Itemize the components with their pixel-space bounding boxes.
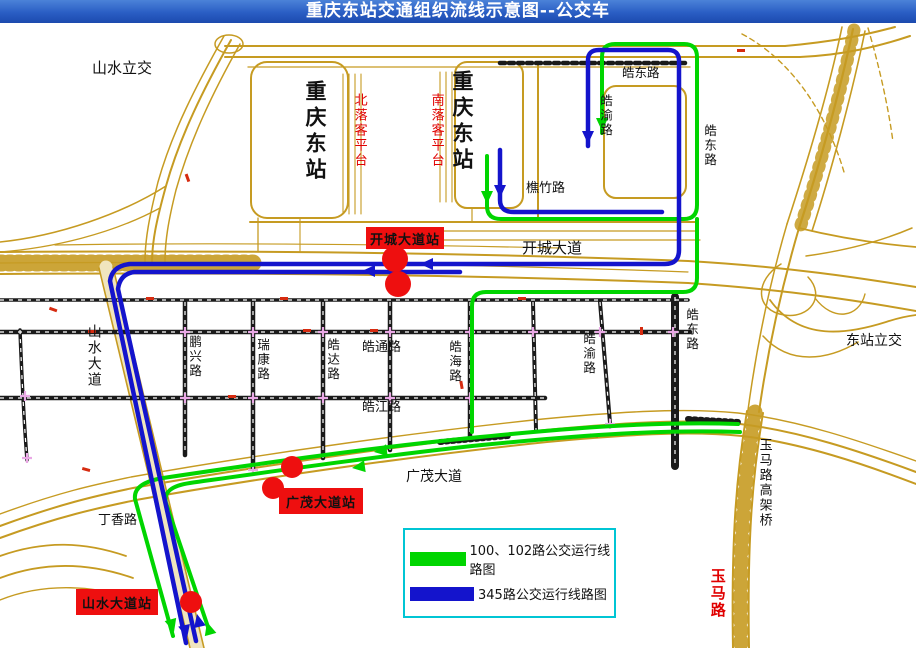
- shanshui-stop-dot: [180, 591, 202, 613]
- label-ruikang-road: 瑞康路: [256, 338, 269, 382]
- station-box-kaicheng: 开城大道站: [366, 227, 444, 249]
- legend-green-swatch: [410, 552, 466, 566]
- legend: 100、102路公交运行线路图 345路公交运行线路图: [403, 528, 616, 618]
- label-haoda-road: 皓达路: [326, 338, 339, 382]
- kaicheng-stop-dot-1: [382, 246, 408, 272]
- label-haohai-road: 皓海路: [448, 340, 461, 384]
- label-kaicheng-avenue: 开城大道: [522, 241, 582, 257]
- label-guangmao-avenue: 广茂大道: [406, 470, 462, 485]
- blue-station-exit: [500, 150, 662, 212]
- legend-blue-swatch: [410, 587, 474, 601]
- guangmao-stop-dot-1: [281, 456, 303, 478]
- label-yuma-viaduct: 玉马路高架桥: [757, 438, 771, 528]
- label-haojiang-road: 皓江路: [362, 401, 401, 415]
- label-haoyu-top: 皓渝路: [599, 94, 612, 138]
- label-dingxiang-road: 丁香路: [98, 514, 137, 528]
- label-yuma-road: 玉马路: [709, 568, 725, 619]
- label-south-platform: 南落客平台: [429, 93, 443, 168]
- label-shanshui-interchange: 山水立交: [92, 61, 152, 77]
- map-page: 重庆东站交通组织流线示意图--公交车: [0, 0, 916, 648]
- legend-green-label: 100、102路公交运行线路图: [470, 540, 615, 578]
- station-box-shanshui: 山水大道站: [76, 589, 158, 615]
- legend-row-blue: 345路公交运行线路图: [410, 584, 607, 603]
- grid-road-center-dashes: [0, 297, 690, 468]
- label-station-left: 重庆东站: [304, 80, 326, 184]
- label-north-platform: 北落客平台: [352, 93, 366, 168]
- legend-row-green: 100、102路公交运行线路图: [410, 540, 614, 578]
- label-haodong-mid: 皓东路: [685, 308, 698, 352]
- label-dongzhan-interchange: 东站立交: [846, 334, 902, 349]
- legend-blue-label: 345路公交运行线路图: [478, 584, 607, 603]
- label-qiaozhu-road: 樵竹路: [526, 182, 565, 196]
- label-haotong-road: 皓通路: [362, 341, 401, 355]
- label-haodong-top: 皓东路: [622, 66, 660, 79]
- station-box-guangmao: 广茂大道站: [279, 488, 363, 514]
- label-station-right: 重庆东站: [451, 70, 473, 174]
- label-pengxing-road: 鹏兴路: [188, 335, 201, 379]
- page-title: 重庆东站交通组织流线示意图--公交车: [0, 0, 916, 23]
- label-shanshui-avenue: 山水大道: [86, 324, 101, 388]
- label-haoyu-mid: 皓渝路: [582, 332, 595, 376]
- label-haodong-upper-right: 皓东路: [703, 124, 716, 168]
- kaicheng-stop-dot-2: [385, 271, 411, 297]
